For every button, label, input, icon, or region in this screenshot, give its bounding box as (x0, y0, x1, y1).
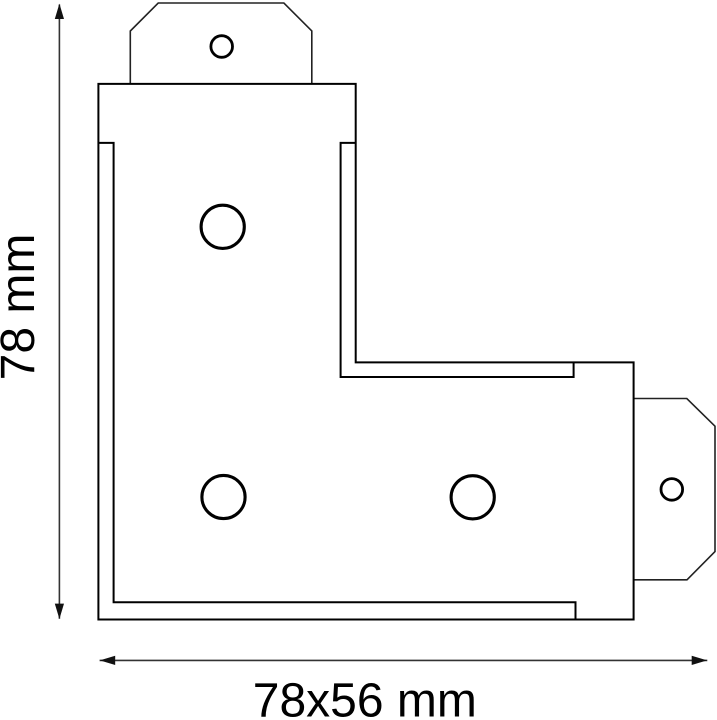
svg-text:78x56 mm: 78x56 mm (253, 675, 477, 720)
svg-text:78 mm: 78 mm (0, 234, 45, 381)
